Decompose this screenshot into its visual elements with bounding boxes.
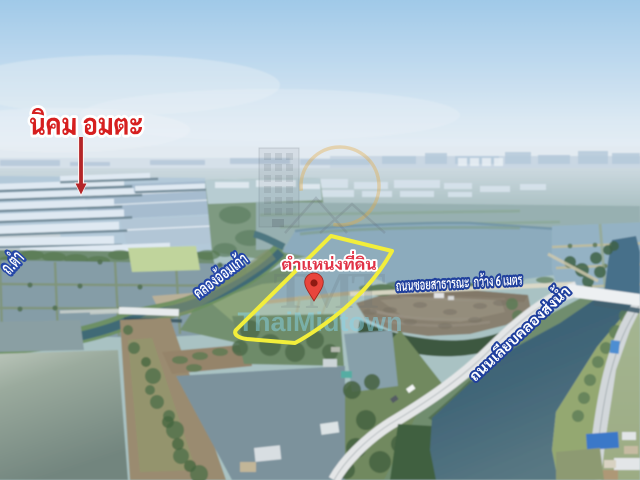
svg-text:ThaiMidtown: ThaiMidtown <box>238 307 403 337</box>
